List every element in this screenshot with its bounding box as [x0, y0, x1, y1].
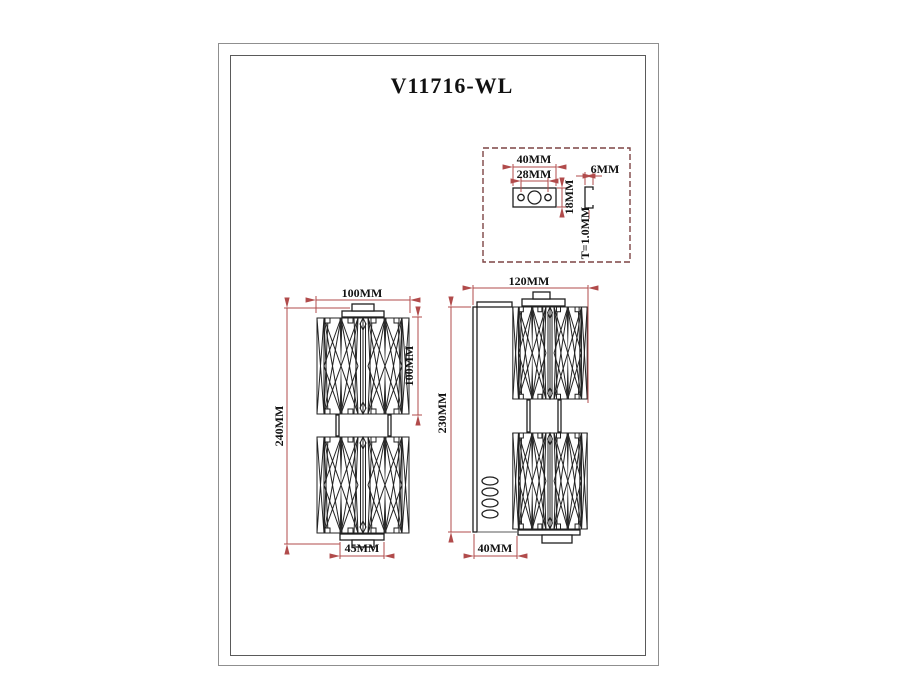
dim-flange-depth-label: 6MM: [591, 163, 620, 175]
front-view-drawing: [284, 296, 422, 559]
dim-side-backplate-offset-label: 40MM: [478, 542, 513, 554]
dim-front-base-width-label: 45MM: [345, 542, 380, 554]
dim-front-shade-height-label: 100MM: [403, 346, 415, 387]
technical-drawing-canvas: [0, 0, 900, 675]
dim-plate-width-label: 40MM: [517, 153, 552, 165]
dim-plate-height-label: 18MM: [563, 180, 575, 215]
dim-front-overall-height-label: 240MM: [273, 406, 285, 447]
dim-side-depth-label: 120MM: [509, 275, 550, 287]
dim-thickness-label: T=1.0MM: [579, 207, 591, 260]
dim-side-height-label: 230MM: [436, 393, 448, 434]
dim-hole-spacing-label: 28MM: [517, 168, 552, 180]
side-view-drawing: [448, 285, 588, 559]
dim-front-width-label: 100MM: [342, 287, 383, 299]
drawing-sheet: V11716-WL: [0, 0, 900, 675]
